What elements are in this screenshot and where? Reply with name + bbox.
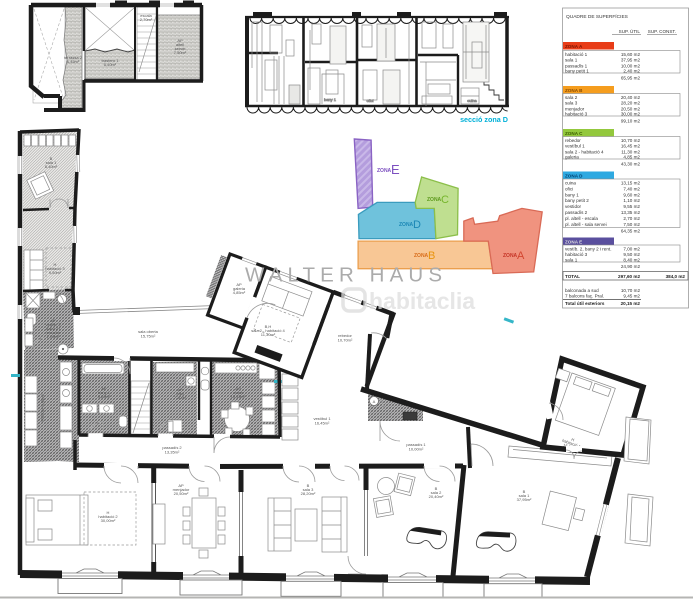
svg-text:7,40 m2: 7,40 m2 <box>623 186 640 191</box>
svg-text:ZONA D: ZONA D <box>565 173 583 178</box>
svg-text:habitaclia: habitaclia <box>369 288 475 314</box>
svg-text:37,95m²: 37,95m² <box>517 497 532 502</box>
svg-text:WALTER HAUS: WALTER HAUS <box>245 264 448 287</box>
svg-text:6,45m²: 6,45m² <box>67 59 80 64</box>
svg-text:Total útil exteriors: Total útil exteriors <box>565 301 605 306</box>
svg-text:7 balcons faç. Pral.: 7 balcons faç. Pral. <box>565 294 604 299</box>
svg-text:SUP. ÚTIL: SUP. ÚTIL <box>619 28 641 34</box>
svg-text:bany petit 1: bany petit 1 <box>565 69 589 74</box>
svg-text:TOTAL: TOTAL <box>565 274 580 279</box>
svg-text:cuina: cuina <box>467 98 477 103</box>
svg-text:balconada a sud: balconada a sud <box>565 288 599 293</box>
svg-text:vestidor 9,55m²: vestidor 9,55m² <box>40 393 46 421</box>
svg-text:ZONA C: ZONA C <box>565 131 583 136</box>
svg-text:30,00m²: 30,00m² <box>101 518 116 523</box>
svg-text:9,55 m2: 9,55 m2 <box>623 204 640 209</box>
svg-text:bany petit 2: bany petit 2 <box>565 198 589 203</box>
svg-text:passadís 2: passadís 2 <box>565 210 588 215</box>
svg-text:2,70 m2: 2,70 m2 <box>623 216 640 221</box>
svg-text:15,60 m2: 15,60 m2 <box>621 52 641 57</box>
svg-text:sala 1: sala 1 <box>565 58 578 63</box>
svg-text:vestíbul 1: vestíbul 1 <box>565 144 585 149</box>
svg-text:13,15 m2: 13,15 m2 <box>621 181 641 186</box>
svg-text:28,20 m2: 28,20 m2 <box>621 101 641 106</box>
svg-text:habitació 3: habitació 3 <box>565 252 588 257</box>
svg-text:sala 3: sala 3 <box>565 101 578 106</box>
svg-text:ZONA: ZONA <box>427 197 442 203</box>
svg-text:galeria: galeria <box>565 155 579 160</box>
svg-text:28,20m²: 28,20m² <box>301 491 316 496</box>
svg-text:pl. altell - escala: pl. altell - escala <box>565 216 598 221</box>
svg-text:secció zona D: secció zona D <box>460 115 508 124</box>
svg-text:ZONA E: ZONA E <box>565 239 582 244</box>
svg-text:13,15m²: 13,15m² <box>231 394 246 399</box>
svg-text:ofici: ofici <box>366 98 373 103</box>
svg-text:43,30 m2: 43,30 m2 <box>621 162 641 167</box>
svg-text:20,40 m2: 20,40 m2 <box>621 95 641 100</box>
svg-text:384,0 m2: 384,0 m2 <box>666 274 686 279</box>
svg-text:ZONA B: ZONA B <box>565 88 583 93</box>
svg-text:ZONA: ZONA <box>399 222 414 228</box>
svg-text:C: C <box>441 194 449 206</box>
svg-text:37,95 m2: 37,95 m2 <box>621 58 641 63</box>
svg-text:7,00 m2: 7,00 m2 <box>623 246 640 251</box>
svg-text:bany 1: bany 1 <box>324 97 337 102</box>
svg-text:9,50 m2: 9,50 m2 <box>623 252 640 257</box>
svg-text:13,35 m2: 13,35 m2 <box>621 210 641 215</box>
svg-text:bany 1: bany 1 <box>565 192 579 197</box>
svg-text:20,15 m2: 20,15 m2 <box>621 301 641 306</box>
svg-text:7,00m²: 7,00m² <box>47 334 60 339</box>
svg-text:9,60 m2: 9,60 m2 <box>623 192 640 197</box>
svg-text:vestíb. 2, bany 2 i rent.: vestíb. 2, bany 2 i rent. <box>565 246 611 251</box>
svg-text:ZONA: ZONA <box>503 253 518 259</box>
svg-text:7,50 m2: 7,50 m2 <box>623 222 640 227</box>
svg-text:64,35 m2: 64,35 m2 <box>621 229 641 234</box>
svg-text:A: A <box>517 250 525 262</box>
svg-text:9,50m²: 9,50m² <box>49 270 62 275</box>
svg-text:ZONA A: ZONA A <box>565 44 583 49</box>
svg-text:8,40m²: 8,40m² <box>45 164 58 169</box>
svg-text:9,60m²: 9,60m² <box>98 394 111 399</box>
svg-text:5,40m²: 5,40m² <box>104 62 117 67</box>
svg-text:A: A <box>373 399 376 404</box>
svg-text:99,10 m2: 99,10 m2 <box>621 119 641 124</box>
svg-text:11,30m²: 11,30m² <box>261 332 276 337</box>
svg-text:7,40m²: 7,40m² <box>174 395 187 400</box>
svg-text:pl. altell - sala servei: pl. altell - sala servei <box>565 222 607 227</box>
svg-text:QUADRE DE SUPERFÍCIES: QUADRE DE SUPERFÍCIES <box>566 13 628 20</box>
svg-text:10,00m²: 10,00m² <box>409 447 424 452</box>
svg-text:30,00 m2: 30,00 m2 <box>621 112 641 117</box>
svg-text:4,85 m2: 4,85 m2 <box>623 155 640 160</box>
svg-text:8,40 m2: 8,40 m2 <box>623 257 640 262</box>
svg-text:10,70 m2: 10,70 m2 <box>621 138 641 143</box>
svg-text:20,40m²: 20,40m² <box>429 494 444 499</box>
svg-text:9,45 m2: 9,45 m2 <box>623 294 640 299</box>
svg-text:16,45 m2: 16,45 m2 <box>621 144 641 149</box>
svg-text:E: E <box>391 162 400 177</box>
svg-text:SUP. CONST.: SUP. CONST. <box>648 29 676 34</box>
svg-text:15,75m²: 15,75m² <box>141 334 156 339</box>
svg-text:ZONA: ZONA <box>414 253 429 259</box>
svg-text:4,85m²: 4,85m² <box>233 290 246 295</box>
svg-text:vestidor: vestidor <box>565 204 582 209</box>
svg-text:cuina: cuina <box>565 181 576 186</box>
svg-text:rebedor: rebedor <box>565 138 581 143</box>
svg-text:10,70 m2: 10,70 m2 <box>621 288 641 293</box>
svg-text:sala 1: sala 1 <box>565 257 578 262</box>
svg-text:habitació 1: habitació 1 <box>565 52 588 57</box>
svg-text:2,40 m2: 2,40 m2 <box>623 69 640 74</box>
svg-text:habitació 3: habitació 3 <box>565 112 588 117</box>
svg-text:ofici: ofici <box>565 186 573 191</box>
svg-text:297,60 m2: 297,60 m2 <box>618 274 640 279</box>
svg-text:65,95 m2: 65,95 m2 <box>621 76 641 81</box>
svg-text:1,10 m2: 1,10 m2 <box>623 198 640 203</box>
svg-text:ZONA: ZONA <box>377 168 392 174</box>
svg-text:D: D <box>413 219 421 231</box>
svg-text:16,45m²: 16,45m² <box>315 421 330 426</box>
svg-text:2,70m²: 2,70m² <box>140 17 153 22</box>
svg-text:7,50m²: 7,50m² <box>174 50 187 55</box>
svg-text:24,90 m2: 24,90 m2 <box>621 264 641 269</box>
svg-text:B: B <box>428 250 435 262</box>
svg-text:10,70m²: 10,70m² <box>338 338 353 343</box>
svg-text:13,35m²: 13,35m² <box>165 450 180 455</box>
svg-text:20,50m²: 20,50m² <box>174 491 189 496</box>
svg-text:sala 2: sala 2 <box>565 95 578 100</box>
